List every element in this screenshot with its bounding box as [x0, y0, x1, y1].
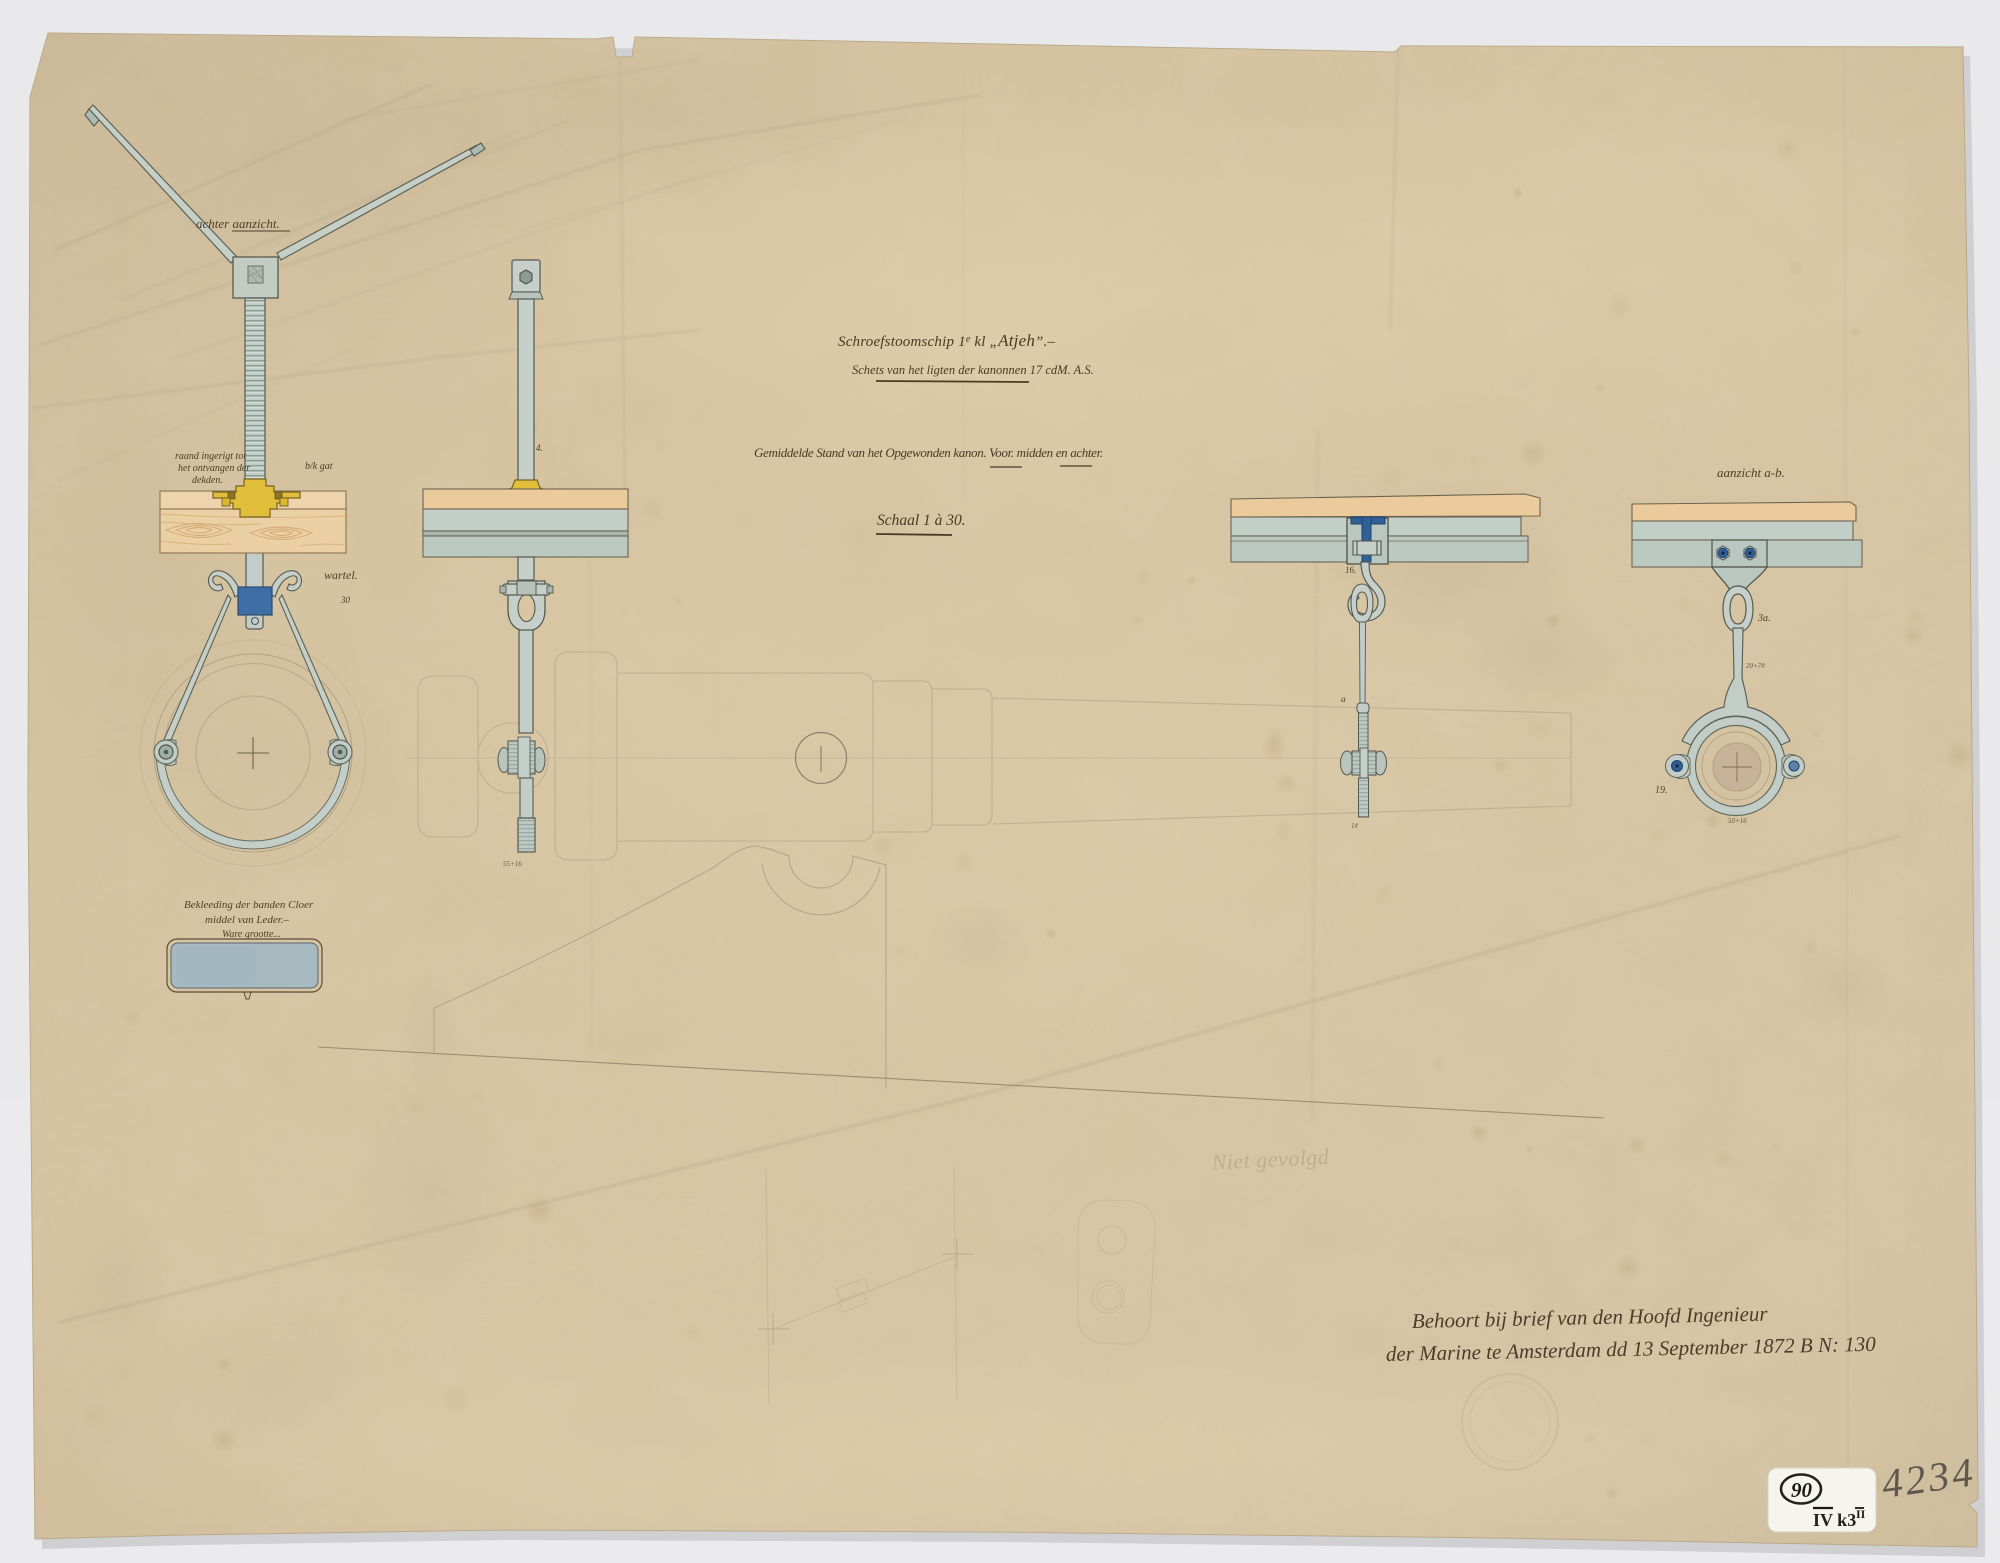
- svg-text:b/k gat: b/k gat: [305, 461, 333, 472]
- svg-text:Gemiddelde Stand van het Opgew: Gemiddelde Stand van het Opgewonden kano…: [754, 445, 1103, 460]
- svg-text:a: a: [1341, 694, 1346, 704]
- svg-text:50+16: 50+16: [1728, 817, 1747, 825]
- svg-text:Schets van het ligten der kano: Schets van het ligten der kanonnen 17 cd…: [852, 363, 1094, 377]
- svg-text:20+7#: 20+7#: [1746, 662, 1765, 670]
- svg-text:middel van Leder.–: middel van Leder.–: [205, 914, 290, 926]
- svg-text:Ware grootte...: Ware grootte...: [222, 929, 281, 940]
- svg-text:90: 90: [1791, 1478, 1813, 1502]
- svg-text:Bekleeding der banden Cloer: Bekleeding der banden Cloer: [184, 899, 314, 911]
- svg-text:1#: 1#: [1351, 822, 1359, 830]
- svg-text:II: II: [1856, 1507, 1866, 1521]
- svg-text:IV k3: IV k3: [1813, 1510, 1856, 1530]
- svg-text:aanzicht a-b.: aanzicht a-b.: [1717, 465, 1785, 480]
- svg-text:dekden.: dekden.: [192, 475, 223, 486]
- svg-text:3a.: 3a.: [1757, 613, 1771, 624]
- svg-text:Schaal 1 à 30.: Schaal 1 à 30.: [877, 512, 966, 529]
- svg-text:raand ingerigt tot: raand ingerigt tot: [175, 451, 246, 462]
- svg-text:30: 30: [340, 595, 351, 605]
- svg-text:16.: 16.: [1345, 565, 1356, 575]
- svg-text:19.: 19.: [1655, 785, 1668, 796]
- svg-text:wartel.: wartel.: [324, 568, 358, 582]
- svg-text:achter aanzicht.: achter aanzicht.: [196, 216, 280, 231]
- svg-text:55+16: 55+16: [503, 860, 522, 868]
- svg-text:4.: 4.: [536, 443, 543, 453]
- svg-text:Schroefstoomschip 1e kl „Atjeh: Schroefstoomschip 1e kl „Atjeh”.–: [838, 331, 1056, 350]
- svg-text:het ontvangen der: het ontvangen der: [178, 463, 250, 474]
